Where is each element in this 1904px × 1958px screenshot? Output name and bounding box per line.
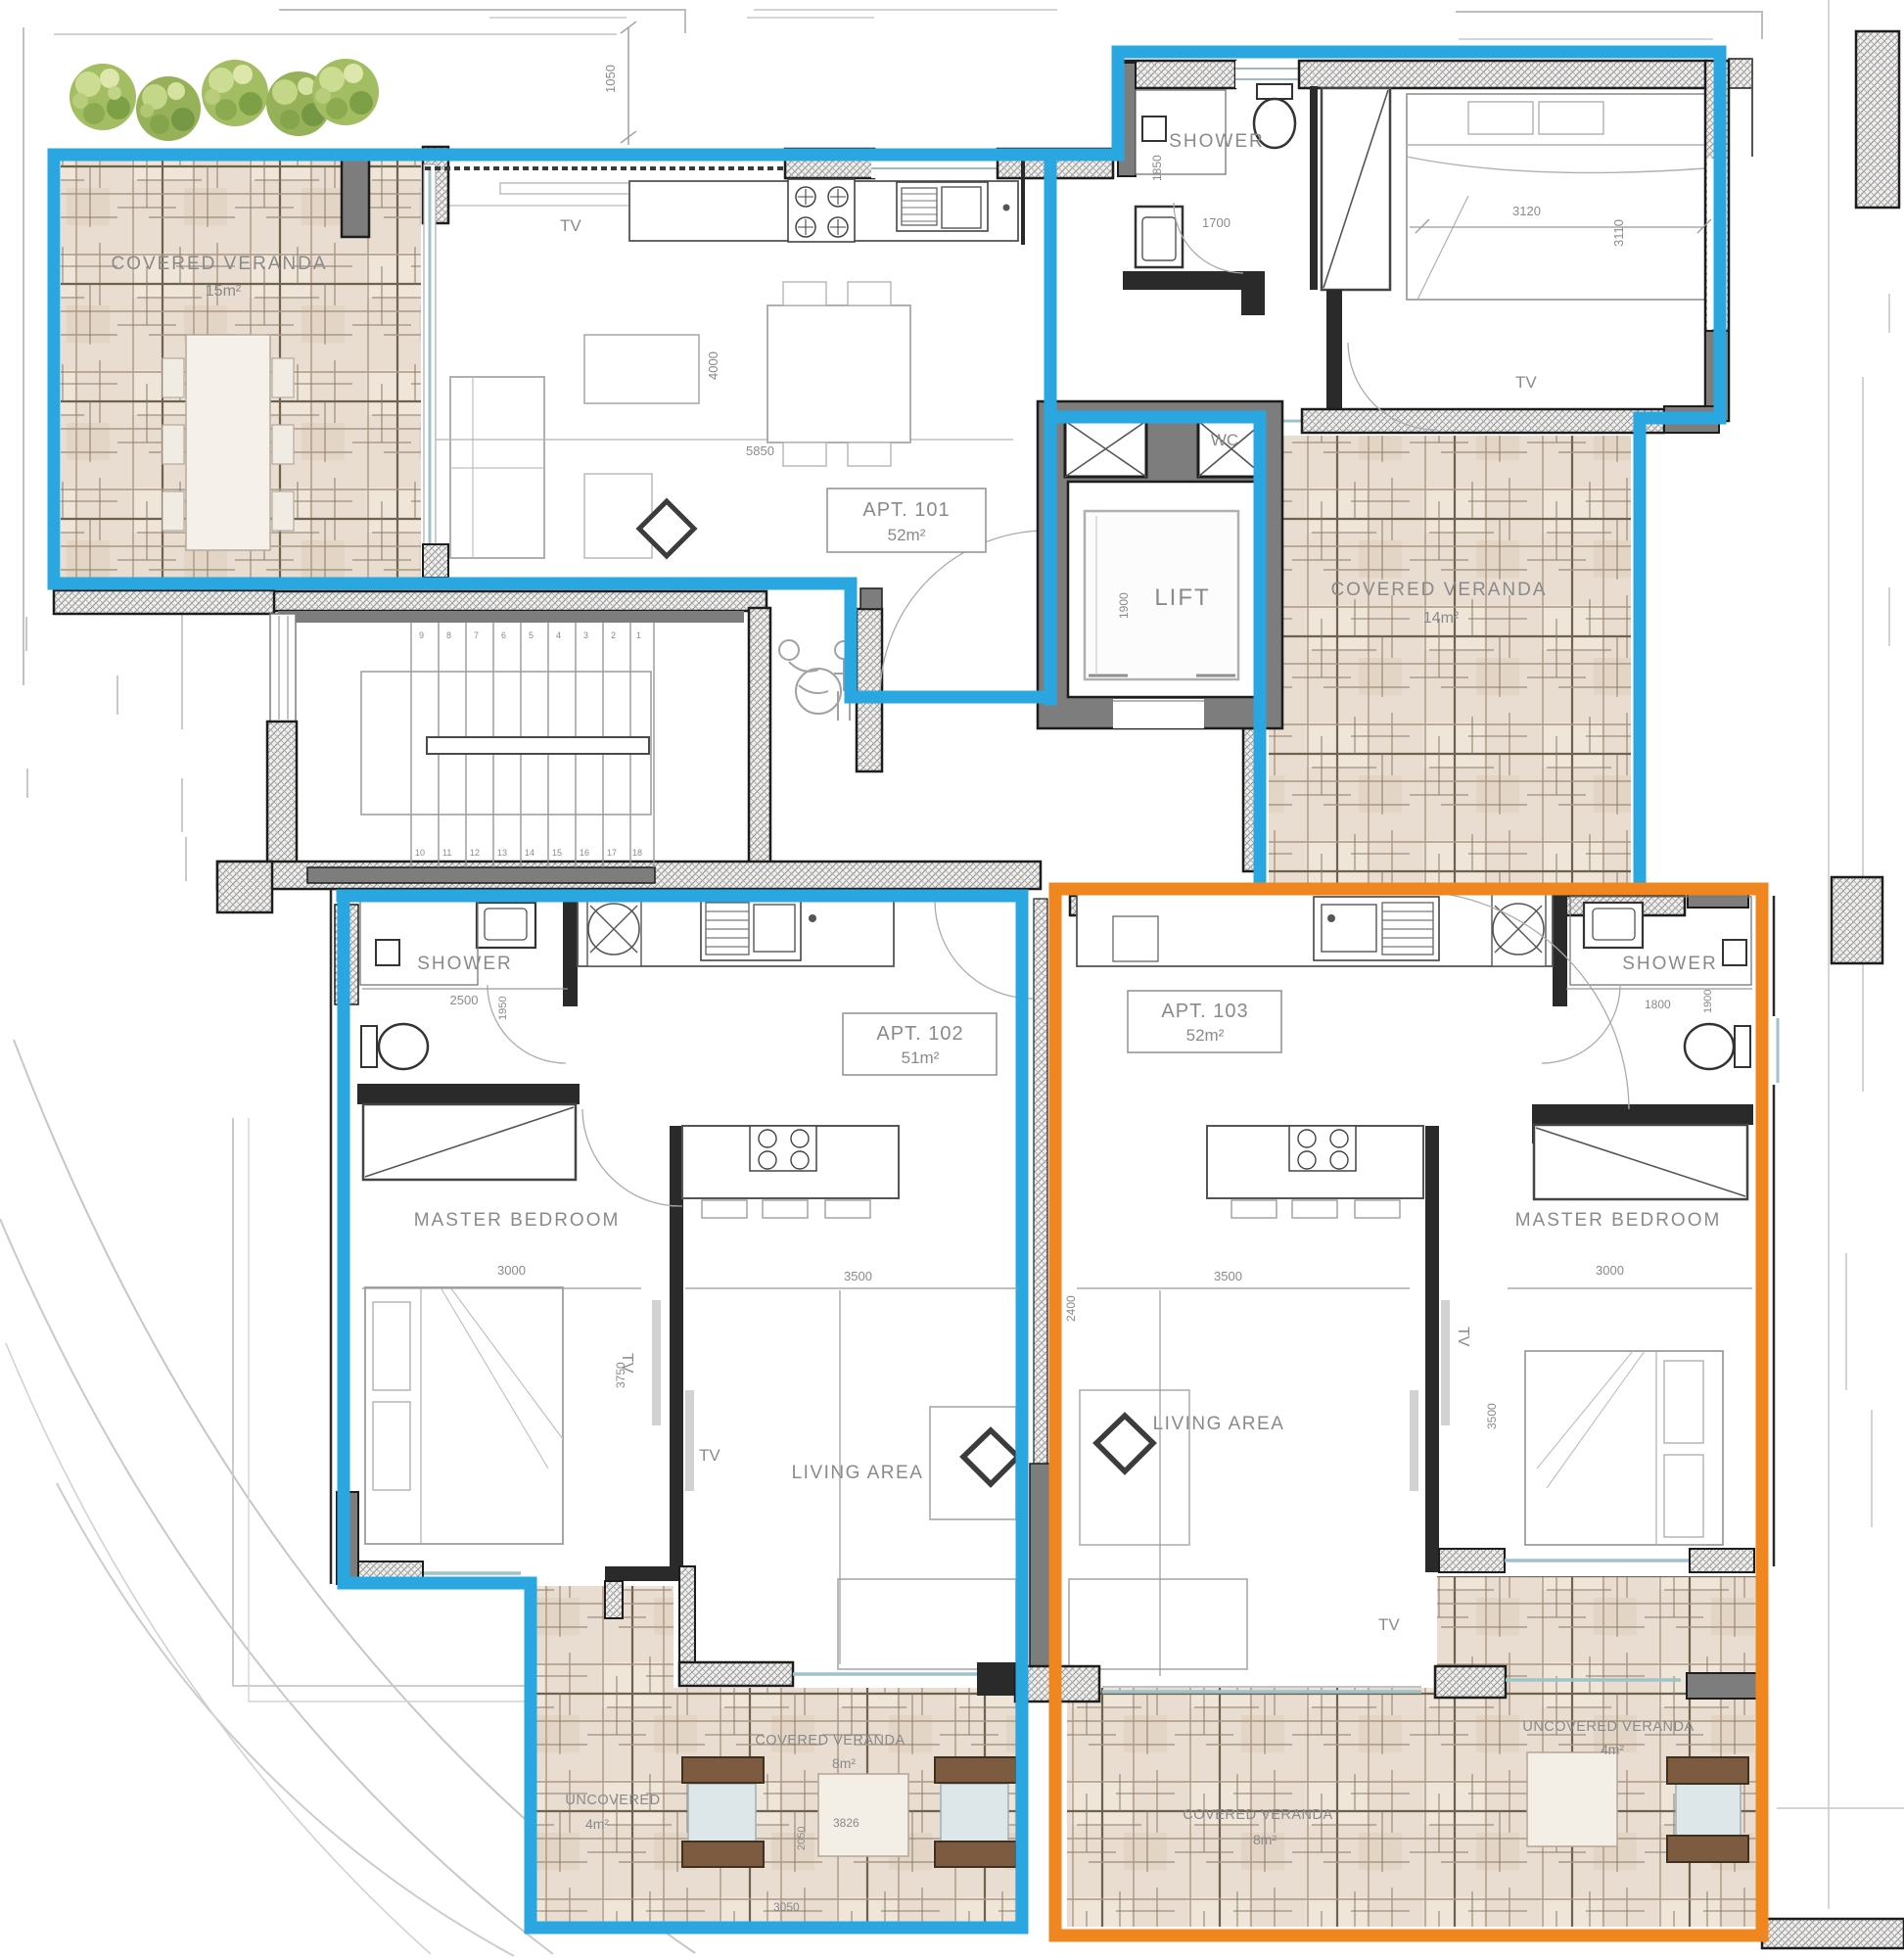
svg-text:2400: 2400: [1064, 1295, 1078, 1322]
svg-text:1900: 1900: [1702, 990, 1714, 1013]
svg-text:2: 2: [611, 630, 616, 640]
svg-text:3826: 3826: [833, 1816, 859, 1830]
svg-text:4m²: 4m²: [585, 1816, 609, 1832]
svg-text:1: 1: [636, 630, 641, 640]
svg-text:3120: 3120: [1512, 204, 1541, 218]
svg-text:16: 16: [580, 848, 589, 858]
svg-text:COVERED VERANDA: COVERED VERANDA: [1330, 580, 1547, 600]
svg-text:SHOWER: SHOWER: [1169, 131, 1265, 152]
svg-text:TV: TV: [560, 216, 581, 235]
svg-text:COVERED VERANDA: COVERED VERANDA: [755, 1733, 905, 1748]
svg-text:13: 13: [497, 848, 507, 858]
svg-text:1050: 1050: [603, 65, 618, 93]
svg-text:3000: 3000: [497, 1263, 526, 1278]
svg-text:TV: TV: [699, 1446, 720, 1465]
svg-text:5: 5: [529, 630, 534, 640]
svg-text:MASTER BEDROOM: MASTER BEDROOM: [414, 1210, 621, 1231]
svg-text:4000: 4000: [706, 351, 720, 380]
svg-text:15m²: 15m²: [206, 283, 242, 300]
svg-text:3500: 3500: [1485, 1403, 1499, 1429]
svg-text:8: 8: [446, 630, 451, 640]
svg-text:1900: 1900: [1117, 592, 1131, 619]
svg-text:14m²: 14m²: [1423, 610, 1460, 627]
svg-text:10: 10: [415, 848, 425, 858]
svg-text:LIVING AREA: LIVING AREA: [1153, 1414, 1285, 1434]
svg-text:17: 17: [607, 848, 617, 858]
svg-text:3750: 3750: [614, 1362, 627, 1388]
svg-text:APT. 102: APT. 102: [876, 1023, 963, 1045]
svg-text:APT. 103: APT. 103: [1161, 1001, 1248, 1022]
svg-text:7: 7: [474, 630, 479, 640]
svg-text:1700: 1700: [1202, 215, 1231, 230]
svg-text:51m²: 51m²: [902, 1049, 940, 1067]
svg-text:UNCOVERED VERANDA: UNCOVERED VERANDA: [1522, 1719, 1694, 1735]
svg-text:1800: 1800: [1645, 998, 1671, 1011]
svg-text:LIFT: LIFT: [1154, 584, 1210, 611]
svg-text:11: 11: [442, 848, 451, 858]
svg-text:COVERED VERANDA: COVERED VERANDA: [1183, 1807, 1332, 1823]
svg-text:4: 4: [556, 630, 561, 640]
svg-text:SHOWER: SHOWER: [1622, 954, 1718, 974]
svg-text:1850: 1850: [1150, 155, 1164, 181]
svg-text:WC: WC: [1211, 431, 1238, 449]
svg-text:2050: 2050: [796, 1827, 808, 1850]
svg-text:9: 9: [419, 630, 424, 640]
svg-text:4m²: 4m²: [1601, 1742, 1624, 1757]
svg-text:TV: TV: [1515, 373, 1537, 392]
svg-text:UNCOVERED: UNCOVERED: [565, 1793, 660, 1808]
svg-text:3: 3: [583, 630, 588, 640]
svg-text:12: 12: [470, 848, 480, 858]
svg-text:3000: 3000: [1596, 1263, 1624, 1278]
svg-text:3500: 3500: [844, 1269, 872, 1283]
svg-text:LIVING AREA: LIVING AREA: [792, 1463, 924, 1483]
svg-text:8m²: 8m²: [1253, 1832, 1277, 1847]
svg-text:APT. 101: APT. 101: [862, 499, 950, 521]
svg-text:COVERED VERANDA: COVERED VERANDA: [111, 254, 327, 274]
svg-text:8m²: 8m²: [832, 1755, 856, 1771]
svg-text:18: 18: [632, 848, 642, 858]
svg-text:3110: 3110: [1611, 219, 1626, 247]
svg-text:1950: 1950: [497, 997, 509, 1020]
svg-text:MASTER BEDROOM: MASTER BEDROOM: [1515, 1210, 1722, 1231]
svg-text:SHOWER: SHOWER: [417, 954, 513, 974]
svg-text:2500: 2500: [450, 993, 479, 1007]
svg-text:3500: 3500: [1214, 1269, 1242, 1283]
svg-text:52m²: 52m²: [888, 526, 926, 544]
svg-text:3050: 3050: [773, 1900, 800, 1914]
svg-text:TV: TV: [1455, 1327, 1471, 1347]
svg-text:6: 6: [501, 630, 506, 640]
svg-text:TV: TV: [1378, 1615, 1400, 1634]
svg-text:52m²: 52m²: [1186, 1026, 1225, 1045]
svg-text:15: 15: [552, 848, 562, 858]
svg-text:5850: 5850: [746, 443, 774, 458]
svg-text:14: 14: [525, 848, 534, 858]
